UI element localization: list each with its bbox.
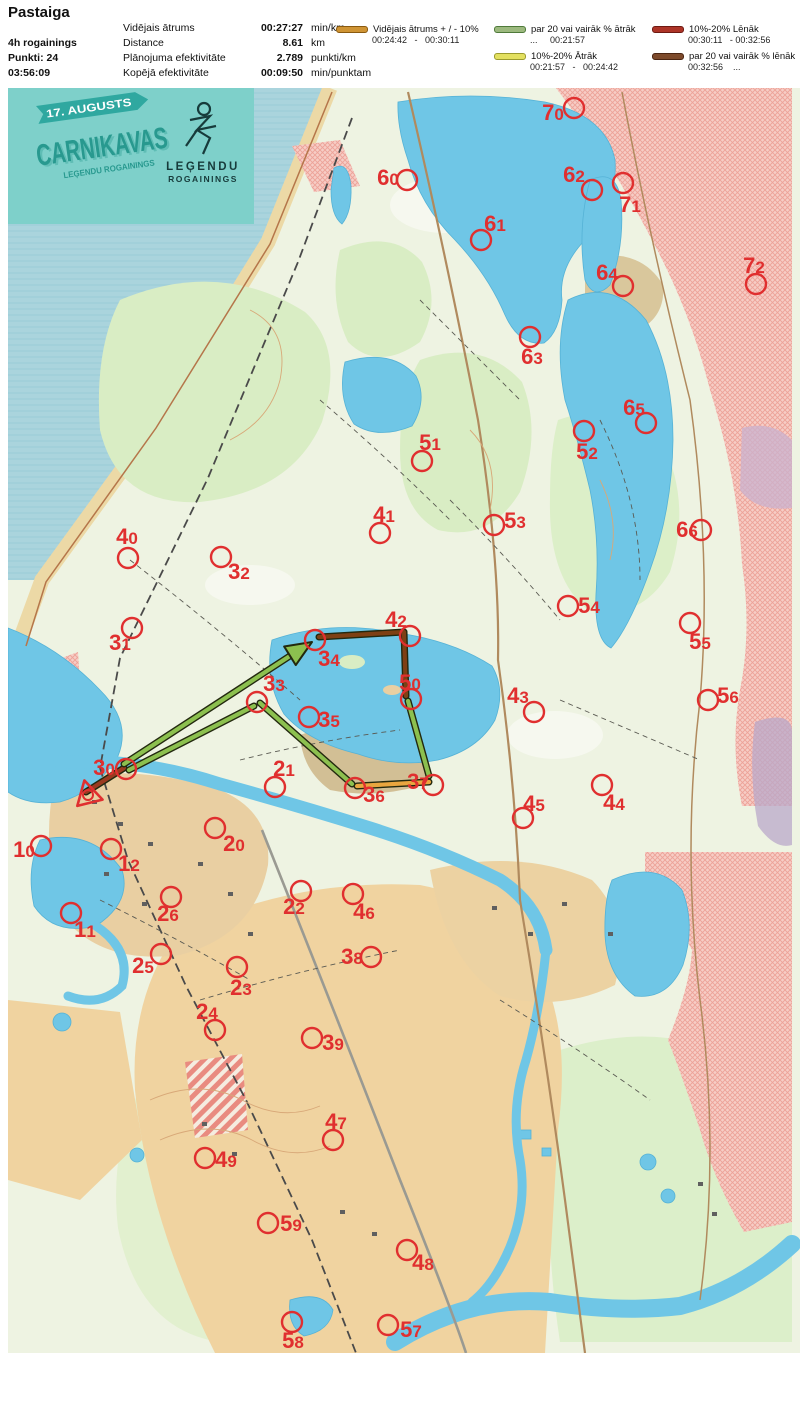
stats-table: Vidējais ātrums 00:27:27 min/km Distance…	[123, 21, 371, 81]
total-time: 03:56:09	[8, 66, 77, 81]
legend-label: 10%-20% Lēnāk	[689, 24, 759, 35]
stat-row: Vidējais ātrums 00:27:27 min/km	[123, 21, 371, 36]
legend-entry-faster10: 10%-20% Ātrāk 00:21:57 - 00:24:42	[494, 51, 636, 72]
legend-range: 00:32:56 ...	[688, 62, 795, 72]
legend-swatch-slower10	[652, 26, 684, 33]
legend-column-3: 10%-20% Lēnāk 00:30:11 - 00:32:56 par 20…	[652, 24, 795, 78]
logo-text-2: ROGAININGS	[168, 174, 238, 184]
legend-label: par 20 vai vairāk % ātrāk	[531, 24, 636, 35]
legend-swatch-average	[336, 26, 368, 33]
event-class: 4h rogainings	[8, 36, 77, 51]
stat-value: 8.61	[255, 36, 303, 51]
map: 17. AUGUSTS CARNIKAVAS CARNIKAVAS LEĢEND…	[8, 88, 800, 1353]
legend-range: 00:30:11 - 00:32:56	[688, 35, 795, 45]
stat-value: 00:09:50	[255, 66, 303, 81]
stat-label: Distance	[123, 36, 255, 51]
points-count: Punkti: 24	[8, 51, 77, 66]
legend-range: ... 00:21:57	[530, 35, 636, 45]
legend-label: Vidējais ātrums + / - 10%	[373, 24, 479, 35]
legend-entry-slower10: 10%-20% Lēnāk 00:30:11 - 00:32:56	[652, 24, 795, 45]
legend-swatch-faster20	[494, 26, 526, 33]
legend-label: 10%-20% Ātrāk	[531, 51, 597, 62]
stat-label: Vidējais ātrums	[123, 21, 255, 36]
report-header: Pastaiga 4h rogainings Punkti: 24 03:56:…	[0, 0, 808, 88]
legend-range: 00:21:57 - 00:24:42	[530, 62, 636, 72]
rogaining-report: { "title": "Pastaiga", "header": { "meta…	[0, 0, 808, 1414]
page-title: Pastaiga	[8, 4, 70, 21]
topo-map: 17. AUGUSTS CARNIKAVAS CARNIKAVAS LEĢEND…	[8, 88, 800, 1353]
legend-label: par 20 vai vairāk % lēnāk	[689, 51, 795, 62]
stat-row: Plānojuma efektivitāte 2.789 punkti/km	[123, 51, 371, 66]
legend-entry-average: Vidējais ātrums + / - 10% 00:24:42 - 00:…	[336, 24, 479, 45]
legend-swatch-slower20	[652, 53, 684, 60]
legend-column-1: Vidējais ātrums + / - 10% 00:24:42 - 00:…	[336, 24, 479, 51]
stat-unit: km	[311, 36, 325, 51]
stat-value: 00:27:27	[255, 21, 303, 36]
stat-row: Distance 8.61 km	[123, 36, 371, 51]
stat-row: Kopējā efektivitāte 00:09:50 min/punktam	[123, 66, 371, 81]
stat-unit: min/punktam	[311, 66, 371, 81]
event-banner: 17. AUGUSTS CARNIKAVAS CARNIKAVAS LEĢEND…	[8, 88, 254, 224]
stat-label: Kopējā efektivitāte	[123, 66, 255, 81]
stat-label: Plānojuma efektivitāte	[123, 51, 255, 66]
stat-unit: punkti/km	[311, 51, 356, 66]
stat-value: 2.789	[255, 51, 303, 66]
legend-range: 00:24:42 - 00:30:11	[372, 35, 479, 45]
legend-entry-slower20: par 20 vai vairāk % lēnāk 00:32:56 ...	[652, 51, 795, 72]
map-terrain-layer	[8, 88, 800, 1353]
logo-text-1: LEĢENDU	[166, 161, 240, 173]
legend-column-2: par 20 vai vairāk % ātrāk ... 00:21:57 1…	[494, 24, 636, 78]
event-meta: 4h rogainings Punkti: 24 03:56:09	[8, 36, 77, 81]
legend-swatch-faster10	[494, 53, 526, 60]
legend-entry-faster20: par 20 vai vairāk % ātrāk ... 00:21:57	[494, 24, 636, 45]
